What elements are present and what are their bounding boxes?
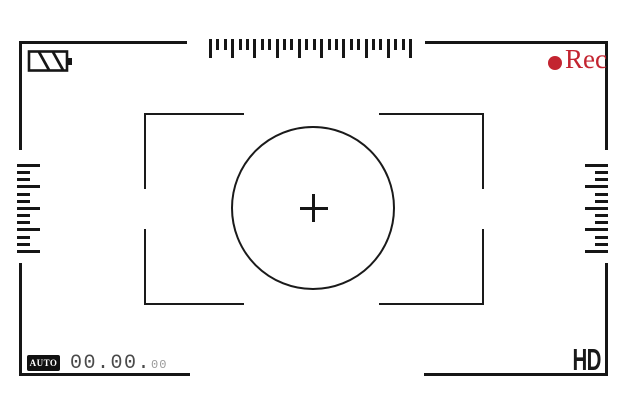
hd-quality-label: HD: [573, 344, 601, 375]
ruler-tick: [290, 39, 293, 50]
ruler-tick: [357, 39, 360, 50]
ruler-tick: [246, 39, 249, 50]
ruler-tick: [283, 39, 286, 50]
ruler-tick: [231, 39, 234, 58]
crosshair-icon: [312, 194, 315, 222]
ruler-tick: [595, 178, 608, 181]
auto-mode-badge: AUTO: [27, 355, 60, 371]
top-ruler: [209, 39, 412, 58]
ruler-tick: [17, 178, 30, 181]
ruler-tick: [595, 221, 608, 224]
frame-left-upper-segment: [19, 41, 22, 150]
ruler-tick: [17, 214, 30, 217]
ruler-tick: [216, 39, 219, 50]
ruler-tick: [17, 228, 40, 231]
ruler-tick: [350, 39, 353, 50]
ruler-tick: [17, 236, 30, 239]
ruler-tick: [595, 171, 608, 174]
ruler-tick: [402, 39, 405, 50]
ruler-tick: [17, 171, 30, 174]
ruler-tick: [261, 39, 264, 50]
ruler-tick: [298, 39, 301, 58]
ruler-tick: [595, 214, 608, 217]
bracket-bottom-left: [144, 229, 244, 305]
ruler-tick: [595, 200, 608, 203]
rec-label: Rec: [565, 46, 607, 73]
camera-viewfinder: Rec AUTO 00.00.00 HD: [0, 0, 626, 418]
ruler-tick: [320, 39, 323, 58]
ruler-tick: [342, 39, 345, 58]
ruler-tick: [276, 39, 279, 58]
ruler-tick: [585, 207, 608, 210]
ruler-tick: [17, 221, 30, 224]
bracket-top-left: [144, 113, 244, 189]
ruler-tick: [394, 39, 397, 50]
ruler-tick: [328, 39, 331, 50]
ruler-tick: [209, 39, 212, 58]
ruler-tick: [17, 164, 40, 167]
ruler-tick: [239, 39, 242, 50]
ruler-tick: [585, 250, 608, 253]
ruler-tick: [595, 193, 608, 196]
ruler-tick: [335, 39, 338, 50]
ruler-tick: [224, 39, 227, 50]
bracket-top-right: [379, 113, 484, 189]
ruler-tick: [372, 39, 375, 50]
ruler-tick: [253, 39, 256, 58]
ruler-tick: [17, 243, 30, 246]
record-dot-icon: [548, 56, 562, 70]
ruler-tick: [17, 185, 40, 188]
ruler-tick: [585, 185, 608, 188]
frame-left-lower-segment: [19, 263, 22, 376]
ruler-tick: [17, 200, 30, 203]
timecode: 00.00.00: [70, 352, 167, 375]
timecode-frames: 00: [151, 358, 167, 372]
ruler-tick: [313, 39, 316, 50]
bracket-bottom-right: [379, 229, 484, 305]
timecode-main: 00.00.: [70, 352, 151, 375]
ruler-tick: [365, 39, 368, 58]
rec-indicator: Rec: [548, 46, 607, 73]
frame-right-lower-segment: [605, 263, 608, 376]
ruler-tick: [595, 243, 608, 246]
frame-top-left-segment: [19, 41, 187, 44]
battery-icon: [27, 49, 73, 73]
ruler-tick: [268, 39, 271, 50]
ruler-tick: [305, 39, 308, 50]
ruler-tick: [585, 164, 608, 167]
ruler-tick: [595, 236, 608, 239]
ruler-tick: [17, 193, 30, 196]
ruler-tick: [379, 39, 382, 50]
left-ruler: [17, 164, 40, 253]
ruler-tick: [585, 228, 608, 231]
right-ruler: [585, 164, 608, 253]
ruler-tick: [17, 250, 40, 253]
ruler-tick: [17, 207, 40, 210]
ruler-tick: [387, 39, 390, 58]
ruler-tick: [409, 39, 412, 58]
